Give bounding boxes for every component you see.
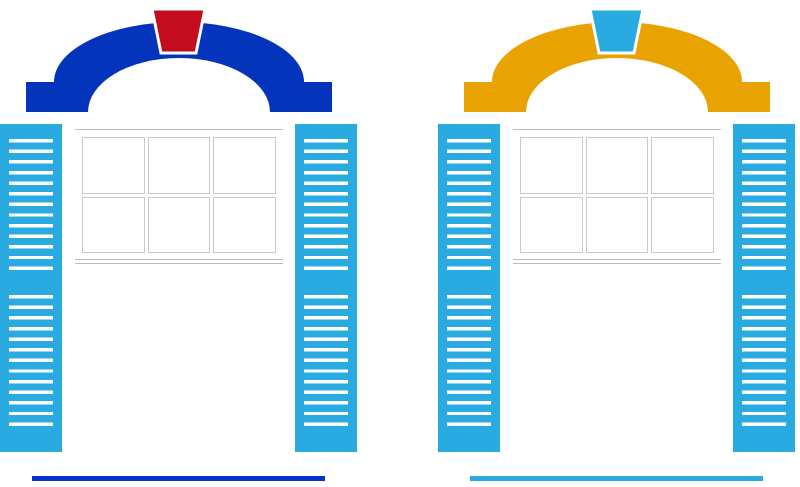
keystone [590,9,643,53]
shutter-right [733,124,795,452]
window-pane [586,197,649,254]
window-pane [651,137,714,194]
frame-line [513,129,721,130]
keystone [152,9,205,53]
louvre-slats [742,139,786,277]
arched-window-right [438,0,796,487]
window-frame [73,125,285,267]
window-pane [520,137,583,194]
window-pane [148,197,211,254]
window-pane [148,137,211,194]
shutter-left [438,124,500,452]
window-pane [520,197,583,254]
arched-window-left [0,0,358,487]
illustration-canvas [0,0,800,487]
underline-bar [32,476,325,481]
frame-line [75,129,283,130]
frame-line [75,263,283,264]
louvre-slats [304,295,348,433]
window-pane [213,137,276,194]
pane-grid [520,137,714,253]
louvre-slats [304,139,348,277]
arch-right [438,0,796,120]
window-pane [213,197,276,254]
shutter-left [0,124,62,452]
louvre-slats [742,295,786,433]
arch-left [0,0,358,120]
frame-line [513,263,721,264]
frame-line [75,259,283,260]
louvre-slats [9,139,53,277]
underline-bar [470,476,763,481]
window-pane [82,137,145,194]
pane-grid [82,137,276,253]
window-pane [586,137,649,194]
frame-line [513,259,721,260]
window-frame [511,125,723,267]
window-pane [82,197,145,254]
louvre-slats [447,139,491,277]
louvre-slats [447,295,491,433]
louvre-slats [9,295,53,433]
window-pane [651,197,714,254]
shutter-right [295,124,357,452]
